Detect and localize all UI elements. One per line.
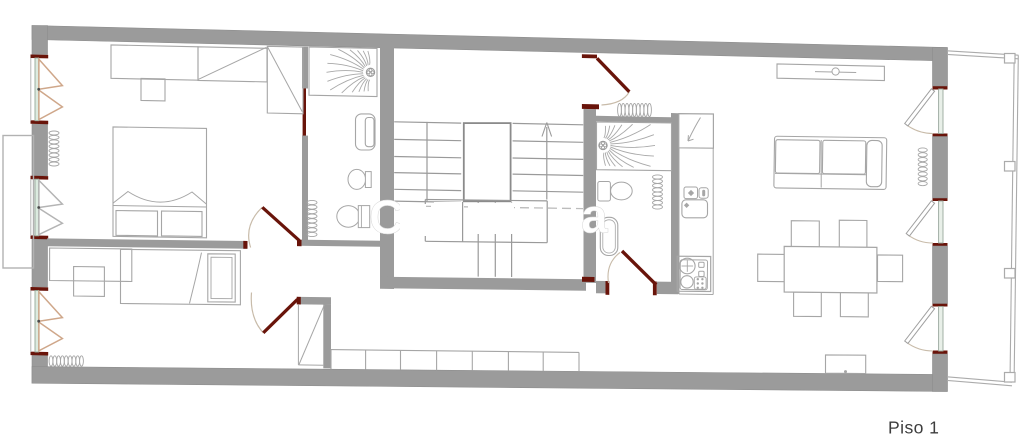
svg-text:Piso 1: Piso 1 bbox=[888, 418, 939, 438]
svg-text:C: C bbox=[369, 192, 404, 245]
svg-text:a: a bbox=[581, 191, 608, 244]
